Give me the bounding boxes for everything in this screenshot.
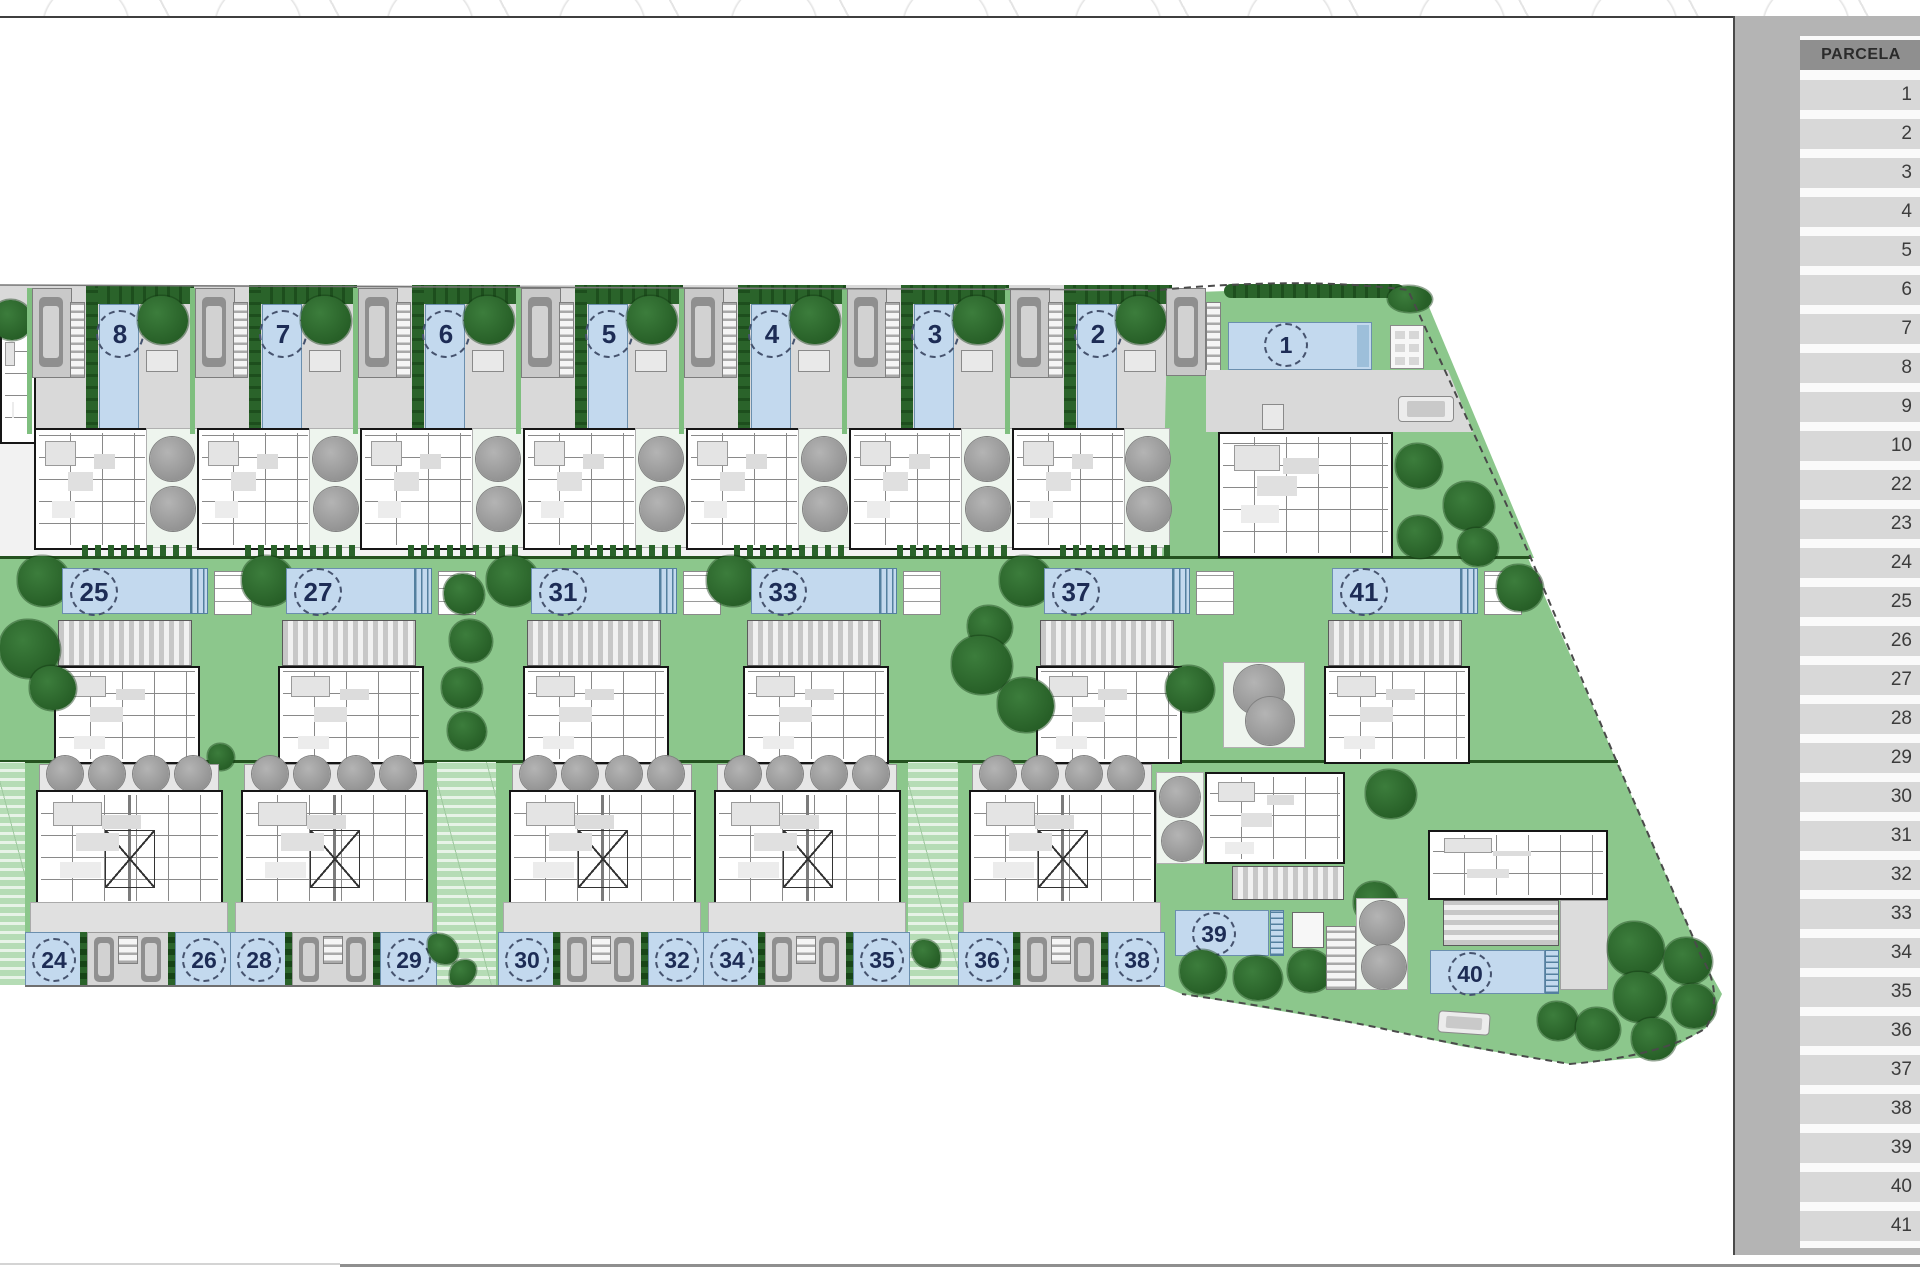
parcela-row: 7 <box>1800 314 1920 344</box>
parcela-row: 26 <box>1800 626 1920 656</box>
parcela-row: 31 <box>1800 821 1920 851</box>
parcela-row: 25 <box>1800 587 1920 617</box>
parcela-row: 33 <box>1800 899 1920 929</box>
parcela-row: 3 <box>1800 158 1920 188</box>
parcela-row: 24 <box>1800 548 1920 578</box>
parcela-row: 5 <box>1800 236 1920 266</box>
bottom-border-line <box>0 1263 340 1265</box>
parcela-row: 9 <box>1800 392 1920 422</box>
parcela-sidebar: PARCELA 1 2 3 4 5 6 7 8 9 10 22 23 24 25… <box>1733 16 1920 1255</box>
parcela-row: 38 <box>1800 1094 1920 1124</box>
parcela-row: 37 <box>1800 1055 1920 1085</box>
parcela-row: 29 <box>1800 743 1920 773</box>
parcela-row: 35 <box>1800 977 1920 1007</box>
parcela-row: 1 <box>1800 80 1920 110</box>
parcela-row: 8 <box>1800 353 1920 383</box>
parcela-row: 22 <box>1800 470 1920 500</box>
bottom-border-line <box>340 1264 1920 1267</box>
parcela-row: 40 <box>1800 1172 1920 1202</box>
parcela-row: 27 <box>1800 665 1920 695</box>
site-boundary <box>0 0 1733 1280</box>
parcela-row: 39 <box>1800 1133 1920 1163</box>
parcela-row: 23 <box>1800 509 1920 539</box>
parcela-row: 4 <box>1800 197 1920 227</box>
parcela-row: 10 <box>1800 431 1920 461</box>
parcela-row: 41 <box>1800 1211 1920 1241</box>
parcela-row: 6 <box>1800 275 1920 305</box>
parcela-row: 30 <box>1800 782 1920 812</box>
parcela-row: 32 <box>1800 860 1920 890</box>
site-plan: 8 7 <box>0 0 1733 1280</box>
parcela-row: 36 <box>1800 1016 1920 1046</box>
parcela-table: 1 2 3 4 5 6 7 8 9 10 22 23 24 25 26 27 2… <box>1800 80 1920 1250</box>
parcela-row: 34 <box>1800 938 1920 968</box>
table-header: PARCELA <box>1800 40 1920 70</box>
parcela-row: 28 <box>1800 704 1920 734</box>
parcela-row: 2 <box>1800 119 1920 149</box>
